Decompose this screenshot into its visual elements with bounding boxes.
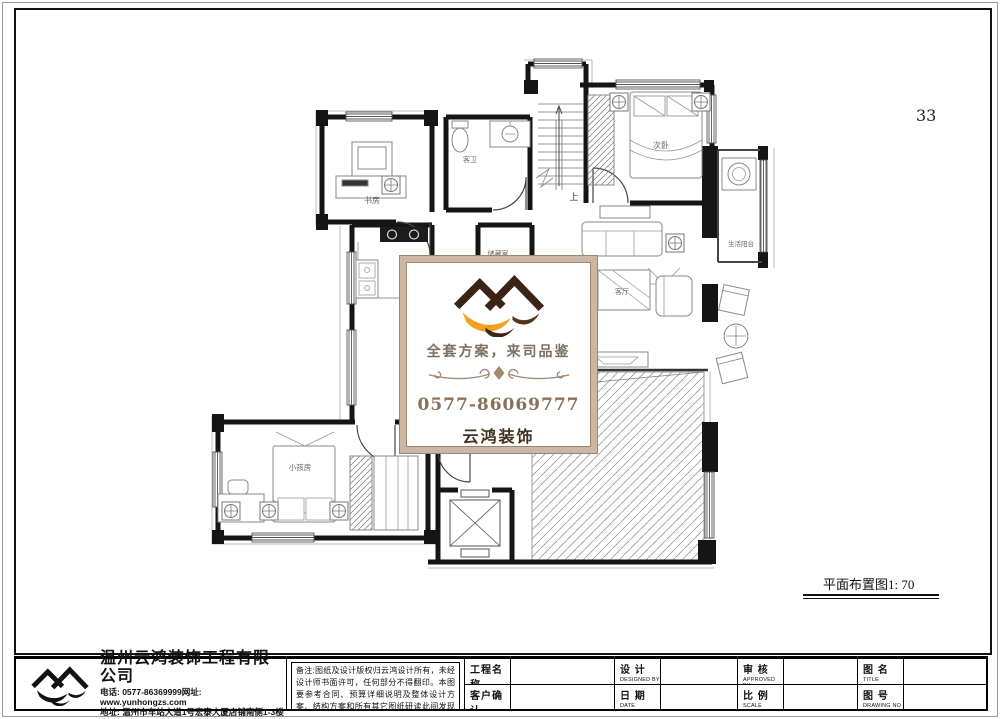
- field-label-confirm: 客户确认 CONFIRM: [464, 684, 510, 709]
- watermark-phone: 0577-86069777: [418, 395, 580, 415]
- company-logo-color: [449, 268, 549, 337]
- terrace-seating: [716, 285, 749, 384]
- watermark-card: 全套方案，来司品鉴 0577-86069777 云鸿装饰: [400, 256, 597, 453]
- notes-cell: 备注:图纸及设计版权归云鸿设计所有，未经设计师书面许可，任何部分不得翻印。本图要…: [286, 659, 464, 709]
- field-value-designed-by: [660, 659, 737, 684]
- field-label-approved-by: 审 核 APPROVED BY: [737, 659, 783, 684]
- company-name: 温州云鸿装饰工程有限公司: [100, 650, 286, 687]
- room-label-study: 书房: [364, 195, 380, 205]
- drawing-sheet: 33: [0, 0, 1000, 719]
- company-logo-icon: [28, 662, 92, 706]
- field-value-title: [903, 659, 986, 684]
- stairs: [536, 104, 584, 190]
- room-label-living-room: 客厅: [615, 287, 629, 296]
- room-label-guest-bath: 客卫: [463, 155, 477, 164]
- field-value-approved-by: [783, 659, 857, 684]
- title-block: 温州云鸿装饰工程有限公司 电话: 0577-86369999网址: www.yu…: [14, 656, 988, 711]
- field-value-confirm: [510, 684, 614, 709]
- drawing-caption: 平面布置图1: 70: [803, 574, 973, 593]
- watermark-brand: 云鸿装饰: [462, 423, 534, 447]
- study-furniture: [336, 142, 406, 198]
- field-label-project: 工程名称 PROJECT: [464, 659, 510, 684]
- field-value-project: [510, 659, 614, 684]
- field-label-designed-by: 设 计 DESIGNED BY: [614, 659, 660, 684]
- field-value-drawing-no: [903, 684, 986, 709]
- bath-fixtures: [452, 121, 530, 152]
- field-label-title: 图 名 TITLE: [857, 659, 903, 684]
- company-cell: 温州云鸿装饰工程有限公司 电话: 0577-86369999网址: www.yu…: [16, 659, 286, 709]
- caption-underline: [803, 594, 939, 596]
- room-label-service-balcony: 生活阳台: [728, 239, 754, 248]
- stairs-up-label: 上: [569, 192, 578, 202]
- room-label-kids-room: 小孩房: [289, 462, 312, 472]
- field-label-date: 日 期 DATE: [614, 684, 660, 709]
- drawing-caption-text: 平面布置图1: 70: [803, 574, 973, 593]
- field-value-date: [660, 684, 737, 709]
- kids-furniture: [218, 432, 418, 530]
- field-value-scale: [783, 684, 857, 709]
- watermark-slogan: 全套方案，来司品鉴: [427, 341, 571, 361]
- company-address: 地址: 温州市车站大道1号宏泰大厦店铺南侧1-3楼: [100, 708, 286, 718]
- caption-underline-2: [803, 598, 939, 599]
- elevator: [450, 490, 500, 557]
- company-phone-web: 电话: 0577-86369999网址: www.yunhongzs.com: [100, 688, 286, 708]
- field-label-scale: 比 例 SCALE: [737, 684, 783, 709]
- ornament-divider: [424, 363, 574, 385]
- room-label-secondary-bedroom: 次卧: [653, 140, 669, 150]
- copyright-notes: 备注:图纸及设计版权归云鸿设计所有，未经设计师书面许可，任何部分不得翻印。本图要…: [291, 662, 460, 709]
- field-label-drawing-no: 图 号 DRAWING NO: [857, 684, 903, 709]
